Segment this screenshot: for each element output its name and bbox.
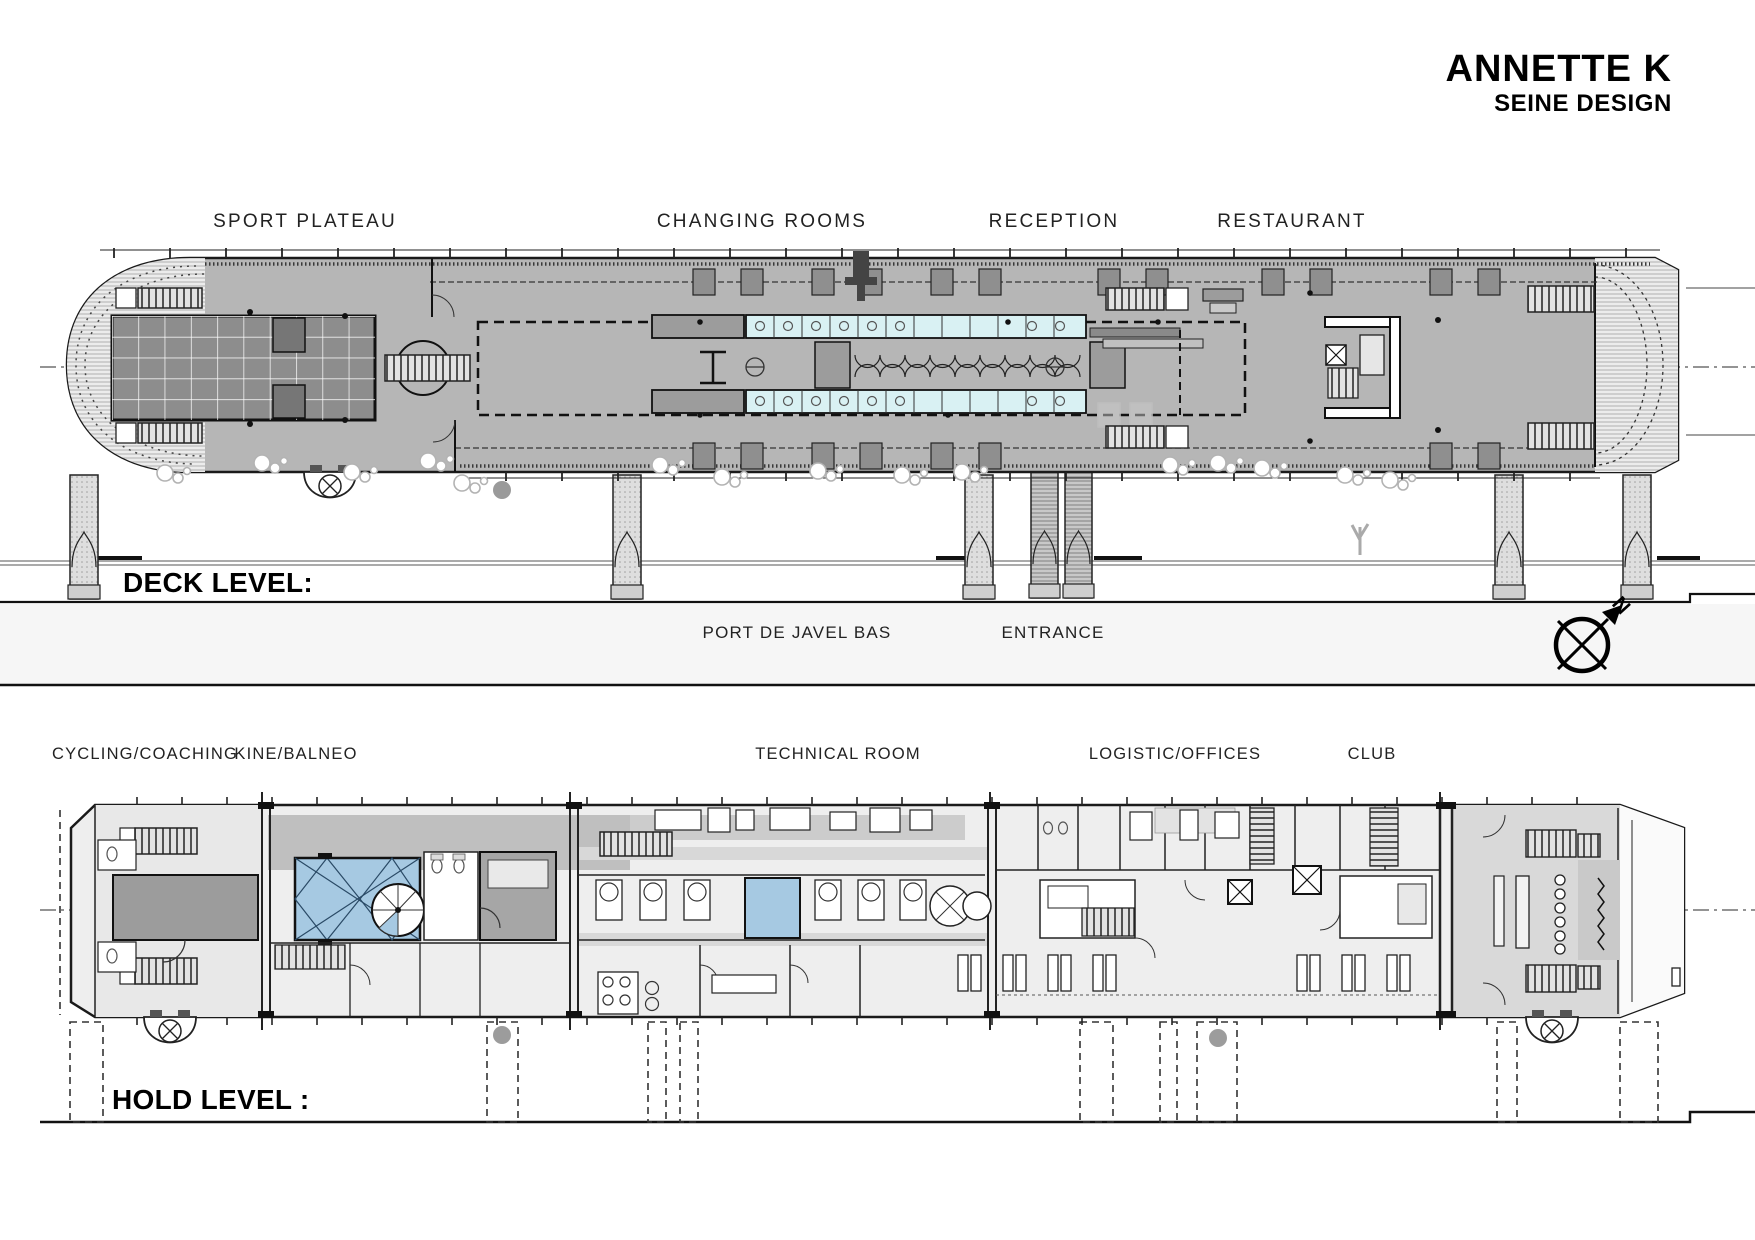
entrance-tower bbox=[1029, 472, 1060, 598]
label-logistic-offices: LOGISTIC/OFFICES bbox=[1089, 745, 1261, 764]
deck-extension-lines bbox=[1686, 288, 1755, 435]
label-cycling-coaching: CYCLING/COACHING bbox=[52, 745, 238, 764]
sport-court bbox=[112, 309, 375, 427]
label-port-de-javel-bas: PORT DE JAVEL BAS bbox=[703, 623, 892, 643]
title-block: ANNETTE K SEINE DESIGN bbox=[1446, 48, 1672, 117]
label-technical-room: TECHNICAL ROOM bbox=[755, 745, 921, 764]
spiral-stair bbox=[372, 884, 424, 936]
deck-level-title: DECK LEVEL: bbox=[123, 567, 313, 599]
entrance-tower bbox=[1063, 472, 1094, 598]
splash-dot bbox=[493, 481, 511, 499]
blueprint-page: ANNETTE K SEINE DESIGN SPORT PLATEAU CHA… bbox=[0, 0, 1755, 1240]
plant-icon bbox=[1352, 524, 1368, 555]
label-club: CLUB bbox=[1348, 745, 1397, 764]
mooring-dot bbox=[493, 1026, 511, 1044]
hold-level-title: HOLD LEVEL : bbox=[112, 1084, 310, 1116]
label-entrance: ENTRANCE bbox=[1001, 623, 1104, 643]
pool-tank bbox=[745, 878, 800, 938]
studio-name: SEINE DESIGN bbox=[1446, 91, 1672, 118]
label-kine-balneo: KINE/BALNEO bbox=[234, 745, 357, 764]
mooring-dot bbox=[1209, 1029, 1227, 1047]
project-title: ANNETTE K bbox=[1446, 48, 1672, 91]
